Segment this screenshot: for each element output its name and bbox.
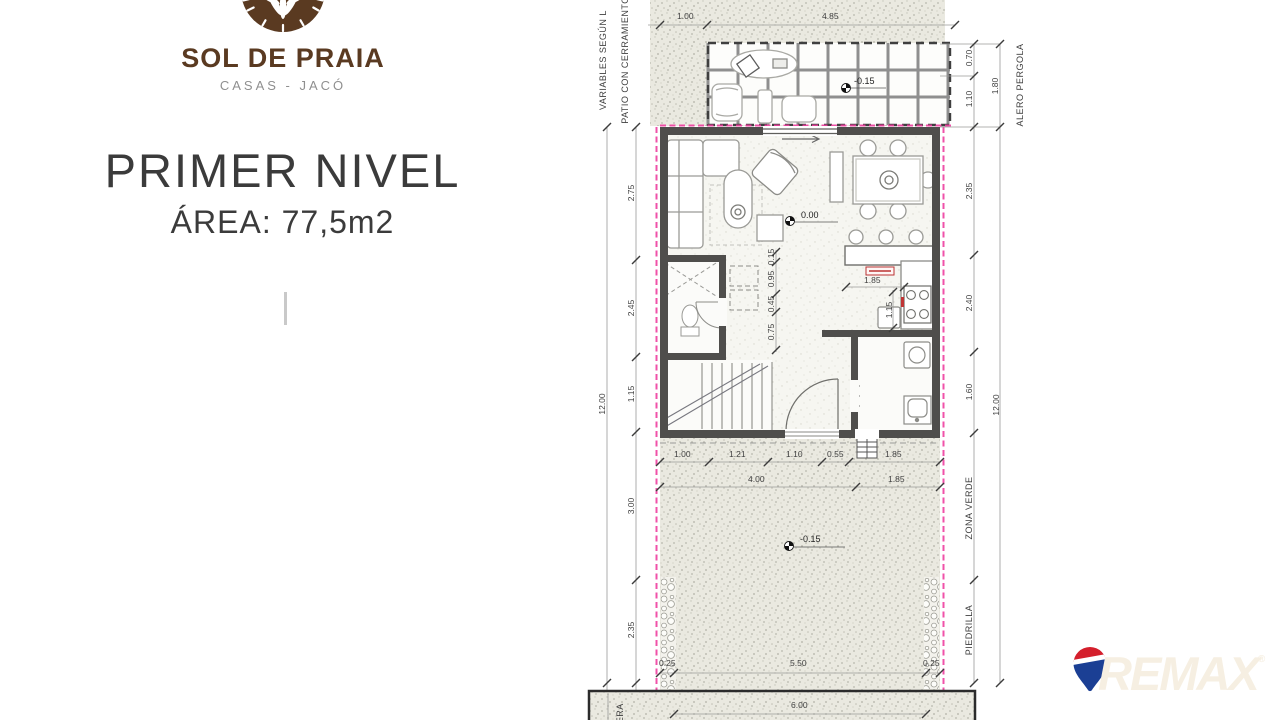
dim-label: 1.21 [729,449,746,459]
dim-label: 3.00 [626,497,636,514]
dim-label: 12.00 [991,394,1001,416]
dim-label: 2.75 [626,184,636,201]
pebble-band-left [661,577,676,689]
site-label: PIEDRILLA [964,605,974,656]
house: 0.00 [665,135,936,458]
site-label: ACERA [615,703,625,720]
dim-label: 2.35 [626,621,636,638]
site-label: PATIO CON CERRAMIENTO [620,0,630,124]
remax-logo: REMAX® [1068,642,1268,712]
dim-label: 1.80 [990,77,1000,94]
dim-label: 12.00 [597,393,607,415]
dim-label: 1.00 [677,11,694,21]
site-label: ALERO PERGOLA [1015,43,1025,126]
dim-label: 2.45 [626,299,636,316]
dim-label: 1.85 [864,275,881,285]
dim-chain-left: 2.75 2.45 1.15 3.00 2.35 12.00 [597,123,640,720]
dim-label: 0.15 [766,248,776,265]
floor-plan-svg: -0.15 [0,0,1280,720]
registered-mark: ® [1258,654,1265,665]
dim-label: 1.15 [884,301,894,318]
floor-plan: -0.15 [0,0,1280,720]
slide: SOL DE PRAIA CASAS - JACÓ PRIMER NIVEL Á… [0,0,1280,720]
dim-label: 6.00 [791,700,808,710]
dim-label: 2.40 [964,294,974,311]
exterior-step [857,437,877,458]
dim-label: 0.25 [659,658,676,668]
level-label: -0.15 [854,76,875,86]
dim-label: 4.85 [822,11,839,21]
side-table-icon [757,215,783,241]
dim-label: 1.10 [964,90,974,107]
remax-wordmark: REMAX® [1098,646,1265,701]
toilet-icon [682,305,698,327]
dim-label: 0.70 [964,49,974,66]
dim-label: 5.50 [790,658,807,668]
dim-label: 0.75 [766,323,776,340]
dim-label: 1.00 [674,449,691,459]
level-label: 0.00 [801,210,819,220]
site-label: VARIABLES SEGÚN L [598,10,608,110]
site-labels-left: VARIABLES SEGÚN L PATIO CON CERRAMIENTO [598,0,630,124]
dim-label: 0.95 [766,270,776,287]
dim-label: 1.85 [888,474,905,484]
site-label: ZONA VERDE [964,476,974,539]
level-label: -0.15 [800,534,821,544]
pergola: -0.15 [708,43,950,125]
coffee-table-icon [724,170,752,228]
remax-wordmark-text: REMAX [1098,647,1258,700]
dim-label: 0.25 [923,658,940,668]
dim-label: 1.60 [964,383,974,400]
dim-label: 1.85 [885,449,902,459]
dim-label: 1.10 [786,449,803,459]
dim-chain-right: 0.70 1.10 1.80 ALERO PERGOLA 2.35 2.40 1… [940,40,1025,687]
dim-label: 4.00 [748,474,765,484]
dim-label: 0.45 [766,295,776,312]
dim-label: 1.15 [626,385,636,402]
dim-label: 0.55 [827,449,844,459]
dim-label: 2.35 [964,182,974,199]
washer-icon [904,342,930,368]
sidewalk: ACERA 6.00 [589,691,975,720]
